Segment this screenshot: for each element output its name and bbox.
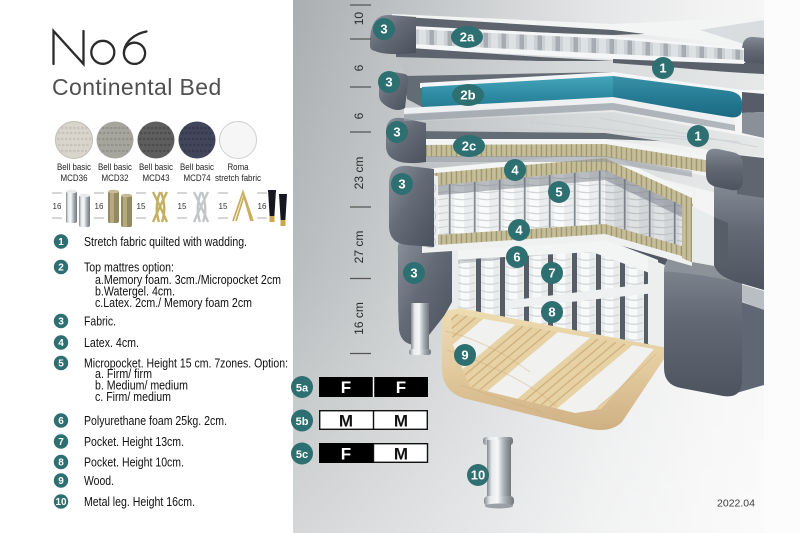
svg-text:10: 10 bbox=[55, 497, 67, 508]
svg-text:Bell basic: Bell basic bbox=[139, 162, 173, 173]
svg-text:3: 3 bbox=[58, 317, 64, 328]
svg-text:8: 8 bbox=[58, 458, 64, 469]
svg-text:Stretch fabric quilted with wa: Stretch fabric quilted with wadding. bbox=[84, 235, 247, 249]
svg-text:Polyurethane foam 25kg. 2cm.: Polyurethane foam 25kg. 2cm. bbox=[84, 414, 227, 428]
svg-text:MCD43: MCD43 bbox=[143, 173, 170, 184]
svg-text:2c: 2c bbox=[462, 139, 476, 154]
svg-text:M: M bbox=[394, 412, 408, 431]
svg-text:Metal leg. Height 16cm.: Metal leg. Height 16cm. bbox=[84, 495, 195, 509]
svg-text:MCD36: MCD36 bbox=[61, 173, 88, 184]
svg-text:15: 15 bbox=[219, 202, 228, 211]
svg-text:5: 5 bbox=[555, 185, 562, 200]
svg-text:Roma: Roma bbox=[228, 162, 250, 173]
svg-text:3: 3 bbox=[410, 266, 417, 281]
svg-text:1: 1 bbox=[659, 61, 666, 76]
svg-text:Continental Bed: Continental Bed bbox=[52, 74, 222, 100]
svg-text:M: M bbox=[339, 412, 353, 431]
svg-text:1: 1 bbox=[58, 237, 64, 248]
svg-text:Bell basic: Bell basic bbox=[98, 162, 132, 173]
svg-text:2022.04: 2022.04 bbox=[717, 498, 755, 510]
svg-text:2b: 2b bbox=[460, 88, 475, 103]
svg-text:MCD74: MCD74 bbox=[184, 173, 211, 184]
svg-text:3: 3 bbox=[380, 22, 387, 37]
svg-text:27 cm: 27 cm bbox=[352, 231, 366, 264]
svg-text:4: 4 bbox=[58, 338, 64, 349]
svg-text:4: 4 bbox=[511, 163, 519, 178]
svg-text:9: 9 bbox=[461, 348, 468, 363]
svg-text:Bell basic: Bell basic bbox=[180, 162, 214, 173]
svg-text:16 cm: 16 cm bbox=[352, 302, 366, 335]
svg-text:6: 6 bbox=[58, 416, 64, 427]
svg-text:Fabric.: Fabric. bbox=[84, 315, 116, 329]
svg-text:15: 15 bbox=[137, 202, 146, 211]
svg-text:4: 4 bbox=[515, 223, 523, 238]
svg-text:Bell basic: Bell basic bbox=[57, 162, 91, 173]
svg-text:Pocket. Height 13cm.: Pocket. Height 13cm. bbox=[84, 435, 184, 449]
svg-text:23 cm: 23 cm bbox=[352, 157, 366, 190]
svg-text:3: 3 bbox=[385, 75, 392, 90]
svg-text:8: 8 bbox=[548, 305, 555, 320]
svg-text:5c: 5c bbox=[296, 449, 308, 461]
svg-text:7: 7 bbox=[548, 266, 555, 281]
svg-text:2: 2 bbox=[58, 263, 64, 274]
svg-text:3: 3 bbox=[398, 177, 405, 192]
svg-text:16: 16 bbox=[95, 202, 104, 211]
svg-text:F: F bbox=[341, 378, 351, 397]
svg-text:c. Firm/ medium: c. Firm/ medium bbox=[95, 390, 171, 404]
svg-text:stretch fabric: stretch fabric bbox=[215, 173, 261, 184]
svg-text:16: 16 bbox=[53, 202, 62, 211]
svg-text:9: 9 bbox=[58, 476, 64, 487]
svg-text:10: 10 bbox=[471, 468, 485, 483]
svg-text:6: 6 bbox=[352, 64, 366, 71]
svg-text:Pocket. Height 10cm.: Pocket. Height 10cm. bbox=[84, 456, 184, 470]
svg-text:F: F bbox=[341, 445, 351, 464]
svg-text:3: 3 bbox=[393, 125, 400, 140]
svg-text:Latex. 4cm.: Latex. 4cm. bbox=[84, 336, 139, 350]
svg-text:2a: 2a bbox=[460, 30, 475, 45]
svg-text:Wood.: Wood. bbox=[84, 474, 114, 488]
svg-text:M: M bbox=[394, 445, 408, 464]
svg-text:MCD32: MCD32 bbox=[102, 173, 129, 184]
svg-text:6: 6 bbox=[513, 250, 520, 265]
svg-text:15: 15 bbox=[178, 202, 187, 211]
svg-text:1: 1 bbox=[694, 129, 701, 144]
svg-text:7: 7 bbox=[58, 437, 64, 448]
svg-text:F: F bbox=[396, 378, 406, 397]
svg-text:5: 5 bbox=[58, 359, 64, 370]
svg-text:10: 10 bbox=[352, 12, 366, 26]
svg-text:5b: 5b bbox=[296, 416, 309, 428]
svg-text:6: 6 bbox=[352, 112, 366, 119]
svg-text:5a: 5a bbox=[296, 383, 309, 395]
svg-text:16: 16 bbox=[258, 202, 267, 211]
svg-text:c.Latex. 2cm./ Memory foam 2cm: c.Latex. 2cm./ Memory foam 2cm bbox=[95, 296, 252, 310]
